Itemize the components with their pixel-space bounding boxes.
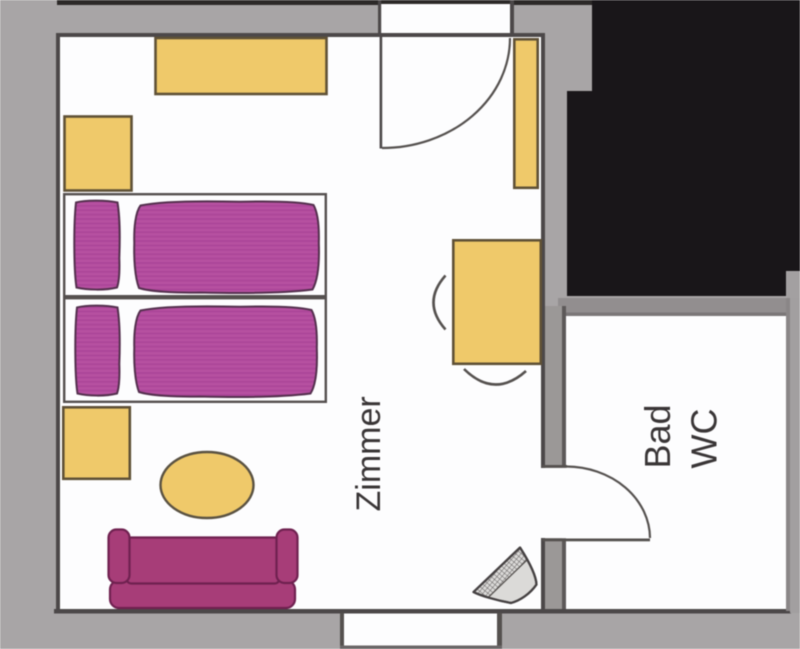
svg-text:WC: WC: [684, 409, 725, 469]
svg-text:Zimmer: Zimmer: [350, 396, 388, 511]
svg-text:Bad: Bad: [637, 404, 678, 468]
